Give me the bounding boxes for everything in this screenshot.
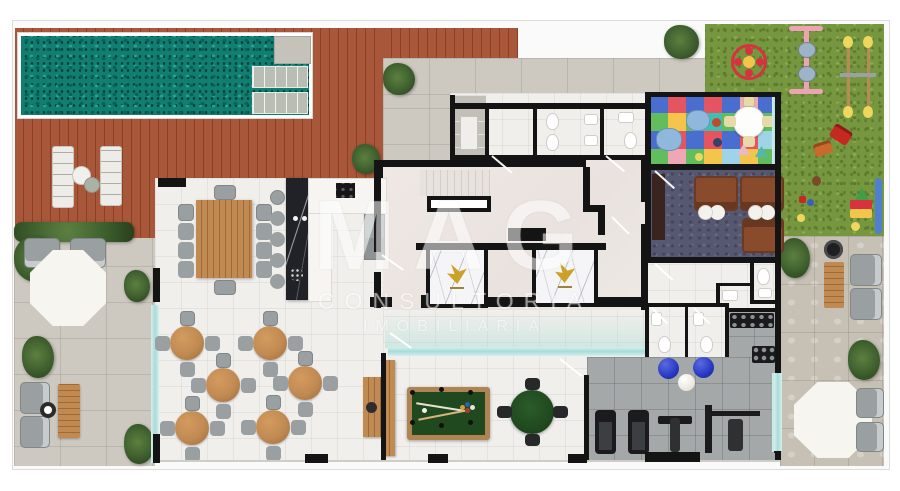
- wall: [725, 305, 729, 357]
- patio-armchair: [856, 422, 884, 452]
- sink: [758, 288, 772, 298]
- kids-table: [733, 106, 765, 138]
- billiards-table: [407, 387, 490, 440]
- play-block: [850, 209, 872, 218]
- bar-sink: [293, 216, 298, 221]
- wall: [450, 103, 650, 109]
- glass-wall: [774, 373, 782, 451]
- toilet: [546, 113, 559, 130]
- toilet: [624, 132, 637, 149]
- wall: [381, 353, 386, 460]
- cooktop: [336, 183, 355, 198]
- wall: [508, 228, 546, 241]
- swing-seat: [798, 66, 816, 82]
- sink: [584, 135, 598, 146]
- wall: [685, 305, 688, 357]
- bench-press-bench: [670, 418, 680, 452]
- stair-void: [427, 196, 491, 212]
- bar-stools: [270, 190, 285, 205]
- dining-chairs-right: [256, 204, 272, 221]
- water-mirror: [385, 310, 647, 348]
- wall: [775, 92, 781, 268]
- lounge-table: [256, 410, 290, 444]
- lounge-chairs: [266, 395, 281, 410]
- treadmill: [595, 410, 616, 454]
- card-table: [510, 390, 554, 434]
- toy: [807, 199, 814, 206]
- patio-armchair: [850, 288, 882, 320]
- merry-go-round: [731, 44, 767, 80]
- storage-shelf: [460, 116, 478, 150]
- wall: [716, 283, 720, 304]
- pool-steps: [274, 36, 311, 64]
- play-bars-crossbar: [840, 73, 876, 77]
- wall: [584, 375, 589, 460]
- wall: [158, 178, 186, 187]
- lounge-chairs: [263, 311, 278, 326]
- dining-chair-head: [214, 185, 236, 200]
- lounge-chairs: [185, 396, 200, 411]
- toy-ball: [695, 153, 703, 161]
- in-pool-lounger: [252, 92, 308, 114]
- dining-chair-head: [214, 280, 236, 295]
- sun-lounger: [52, 146, 74, 208]
- elevator-logo: [447, 264, 468, 285]
- dumbbell-rack: [730, 313, 774, 328]
- toilet: [546, 134, 559, 151]
- toy-ball: [797, 214, 805, 222]
- play-bars-cap: [863, 106, 873, 118]
- wall: [594, 297, 648, 307]
- wall: [377, 160, 383, 178]
- bean-bag: [686, 110, 710, 131]
- tree: [664, 25, 699, 59]
- play-block: [850, 200, 872, 209]
- tree: [780, 238, 810, 278]
- treadmill: [628, 410, 649, 454]
- play-bars-cap: [863, 36, 873, 48]
- elevator-logo-text: [558, 286, 572, 288]
- side-table: [40, 402, 56, 418]
- deck-side-table: [84, 177, 100, 193]
- wall: [450, 155, 650, 160]
- wall: [450, 95, 455, 157]
- wall: [600, 109, 604, 157]
- outdoor-bench: [824, 262, 844, 308]
- fire-pit: [824, 240, 843, 259]
- stool: [366, 402, 377, 413]
- wall: [727, 308, 780, 312]
- sink: [722, 290, 738, 301]
- plant: [22, 336, 54, 378]
- lounge-chairs: [216, 353, 231, 368]
- coffee-table: [58, 384, 80, 438]
- wall: [716, 283, 752, 286]
- wall: [421, 295, 429, 308]
- lounge-table: [170, 326, 204, 360]
- wall: [648, 257, 780, 263]
- wall: [750, 300, 781, 304]
- patio-armchair: [850, 254, 882, 286]
- wall: [533, 109, 537, 157]
- slide: [875, 178, 882, 234]
- elevator: [426, 246, 488, 308]
- sun-lounger: [100, 146, 122, 206]
- cable-machine-seat: [728, 419, 743, 451]
- wall: [648, 92, 780, 97]
- lounge-chairs: [180, 311, 195, 326]
- tv-cabinet: [652, 174, 665, 240]
- wood-deck-band: [383, 28, 518, 58]
- floor-plan-rendering: MAG CONSULTORIA IMOBILIÁRIA: [0, 0, 900, 491]
- wall: [598, 205, 605, 235]
- bush: [124, 270, 150, 302]
- patio-armchair: [856, 388, 884, 418]
- wall: [416, 243, 606, 250]
- wall: [645, 305, 649, 357]
- exercise-ball: [658, 358, 679, 379]
- facade-pier: [428, 454, 448, 463]
- pouf-pair: [698, 205, 713, 220]
- bean-bag: [656, 128, 682, 151]
- elevator-logo: [555, 263, 576, 284]
- sink: [584, 114, 598, 125]
- cable-machine-bar: [712, 411, 760, 416]
- wall: [485, 109, 489, 157]
- wall: [645, 92, 651, 262]
- toy: [799, 196, 806, 203]
- staircase: [420, 170, 490, 196]
- facade-pier: [568, 454, 587, 463]
- card-table-chairs: [525, 378, 540, 390]
- lounge-table: [175, 411, 209, 445]
- decor-stool: [290, 268, 303, 281]
- facade-pier: [153, 268, 160, 302]
- wall: [370, 297, 392, 307]
- swing-seat: [798, 42, 816, 58]
- billiard-balls: [460, 405, 465, 410]
- play-bars-cap: [843, 106, 853, 118]
- billiard-pockets: [410, 390, 415, 395]
- weight-rack: [752, 346, 775, 363]
- elevator: [532, 245, 598, 307]
- exercise-ball: [693, 357, 714, 378]
- facade-pier: [153, 434, 160, 463]
- top-patio-2: [383, 108, 450, 160]
- tree: [383, 63, 415, 95]
- plant: [124, 424, 154, 464]
- toy: [712, 118, 721, 127]
- dining-chairs-left: [178, 204, 194, 221]
- dining-table: [196, 200, 252, 278]
- wall: [648, 164, 780, 170]
- elevator-logo-text: [450, 287, 464, 289]
- lounge-table: [206, 368, 240, 402]
- kids-chairs: [743, 96, 755, 107]
- wall: [374, 160, 586, 167]
- toy-ball: [851, 222, 860, 231]
- cue-ball: [422, 408, 427, 413]
- sink: [618, 112, 634, 123]
- glass-wall: [388, 347, 646, 356]
- toy: [713, 138, 722, 147]
- exercise-ball: [678, 374, 695, 391]
- swing-set-beam: [804, 29, 809, 92]
- bar-counter: [286, 178, 308, 300]
- toilet: [757, 268, 770, 285]
- toy: [812, 176, 821, 186]
- play-bars-cap: [843, 36, 853, 48]
- facade-pier: [305, 454, 328, 463]
- wall: [374, 167, 381, 252]
- patio-armchair: [20, 416, 50, 448]
- in-pool-lounger: [252, 66, 308, 88]
- wall: [486, 297, 536, 307]
- toilet: [700, 336, 713, 353]
- pouf-pair: [748, 205, 763, 220]
- toilet: [658, 336, 671, 353]
- cable-machine: [705, 405, 781, 453]
- lounge-table: [253, 326, 287, 360]
- facade-pier: [645, 452, 700, 462]
- lounge-chairs: [298, 351, 313, 366]
- lounge-table: [288, 366, 322, 400]
- merry-go-round-center: [743, 56, 755, 68]
- plant: [848, 340, 880, 380]
